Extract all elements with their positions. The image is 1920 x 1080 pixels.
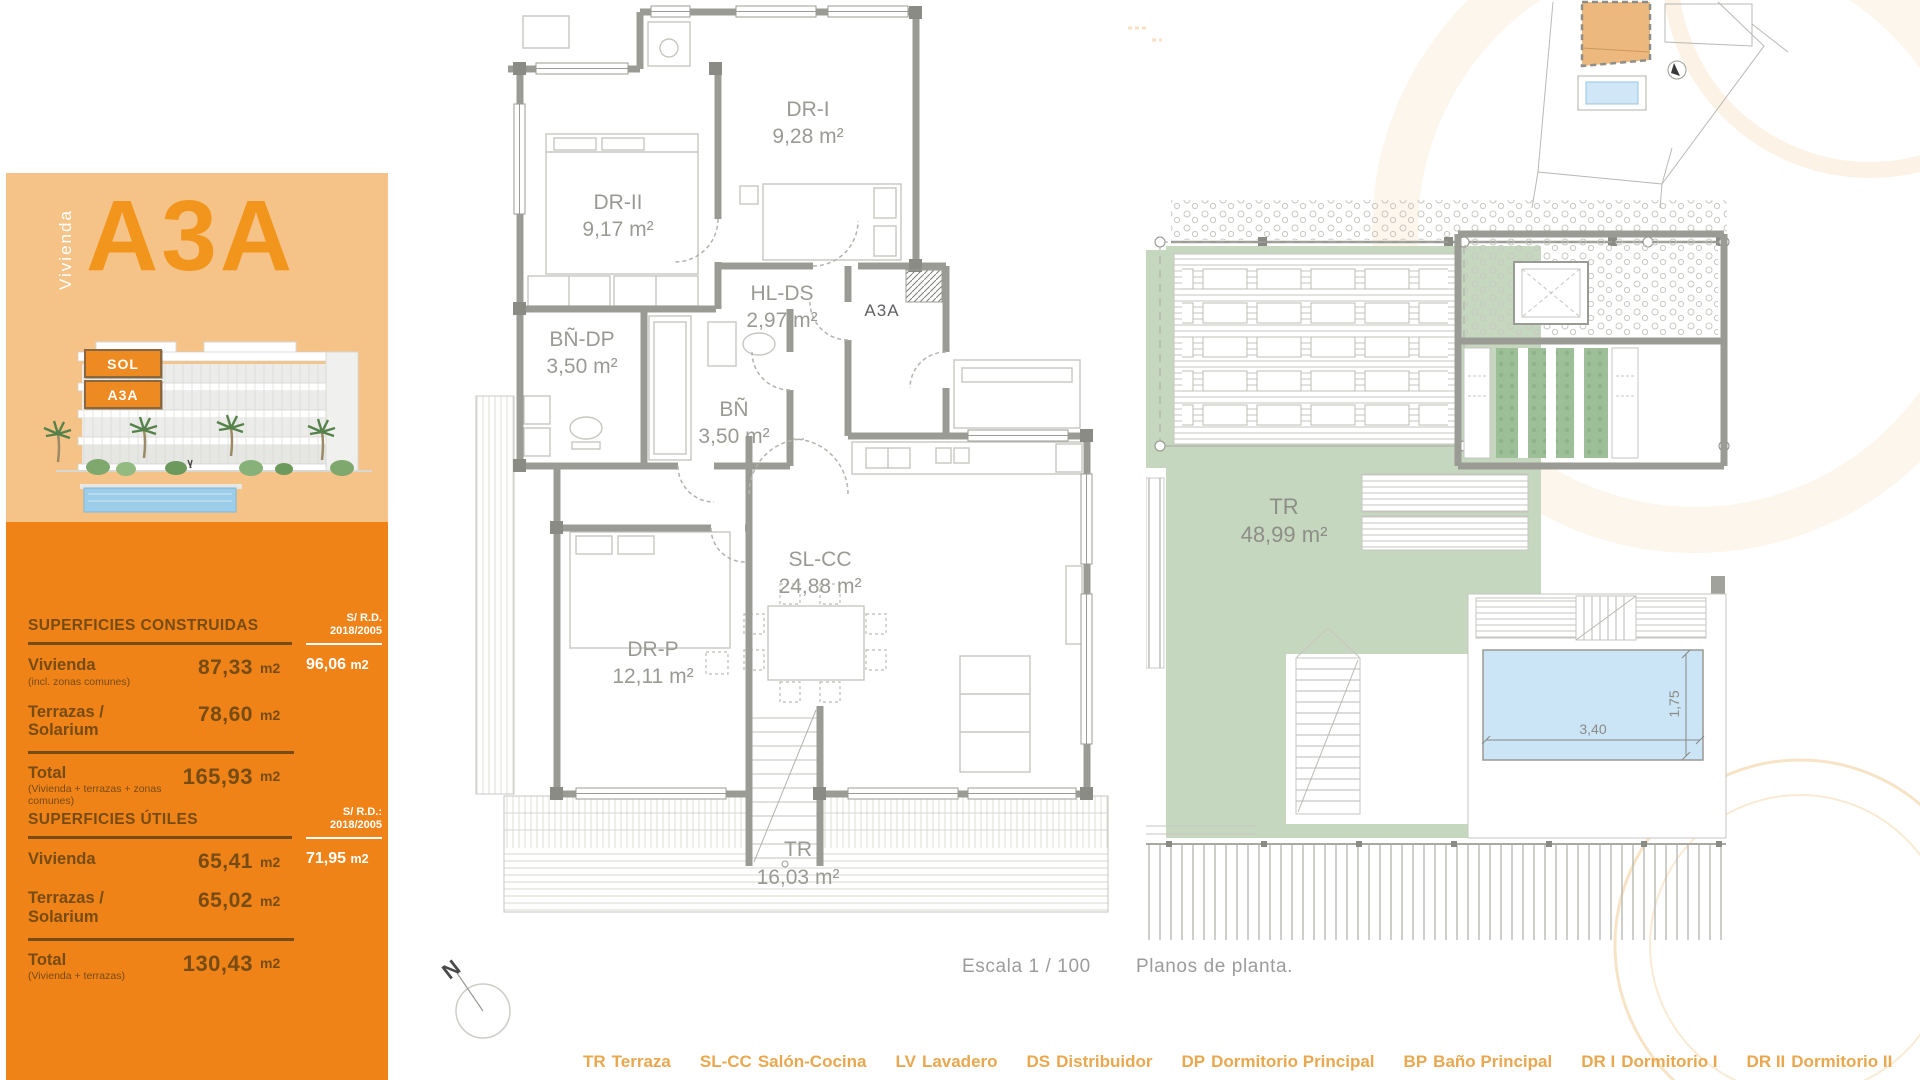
legend-code: DS	[1027, 1052, 1051, 1072]
roof-terrace-label: TR	[1269, 494, 1298, 519]
legend-code: BP	[1404, 1052, 1428, 1072]
room-label-hlds: HL-DS	[750, 282, 813, 305]
legend-name: Baño Principal	[1433, 1052, 1552, 1072]
table-row: Terrazas / Solarium 78,60 m2	[28, 692, 382, 743]
table-superficies-utiles: SUPERFICIES ÚTILES S/ R.D.: 2018/2005 Vi…	[28, 806, 382, 986]
site-compass-icon	[1668, 61, 1686, 79]
entry-walkway	[954, 360, 1080, 428]
room-area-tr: 16,03 m²	[757, 866, 840, 889]
table-row: Vivienda(incl. zonas comunes) 87,33 m2 9…	[28, 645, 382, 692]
kitchen-counter	[852, 442, 1085, 474]
legend-code: DR II	[1747, 1052, 1786, 1072]
table-row: Vivienda 65,41 m2 71,95 m2	[28, 839, 382, 878]
row-value: 65,02	[175, 889, 253, 913]
legend-name: Dormitorio I	[1621, 1052, 1717, 1072]
total-sublabel: (Vivienda + terrazas)	[28, 971, 175, 983]
legend-name: Salón-Cocina	[758, 1052, 867, 1072]
row-label: Vivienda	[28, 850, 96, 868]
row-label: Terrazas / Solarium	[28, 889, 104, 925]
legend-code: SL-CC	[700, 1052, 752, 1072]
row-rd-value: 71,95	[306, 850, 346, 867]
table-rd-header: S/ R.D. 2018/2005	[306, 612, 382, 645]
table-total-row: Total(Vivienda + terrazas) 130,43 m2	[28, 938, 294, 987]
legend-bar: TRTerraza SL-CCSalón-Cocina LVLavadero D…	[583, 1052, 1920, 1072]
room-area-hlds: 2,97 m²	[746, 309, 817, 332]
legend-name: Terraza	[612, 1052, 671, 1072]
table-row: Terrazas / Solarium 65,02 m2	[28, 878, 382, 929]
total-value: 165,93	[175, 764, 253, 790]
laundry-lv	[648, 22, 690, 66]
plans-note: Planos de planta.	[1136, 956, 1293, 978]
legend-code: DR I	[1581, 1052, 1615, 1072]
unit-type-label: Vivienda	[56, 198, 76, 290]
row-rd-value: 96,06	[306, 656, 346, 673]
legend-item: DR IDormitorio I	[1581, 1052, 1717, 1072]
legend-name: Distribuidor	[1056, 1052, 1152, 1072]
row-value: 78,60	[175, 703, 253, 727]
room-label-slcc: SL-CC	[788, 548, 851, 571]
unit-marker: A3A	[864, 301, 899, 320]
room-area-drII: 9,17 m²	[582, 218, 653, 241]
table-title: SUPERFICIES CONSTRUIDAS	[28, 617, 292, 645]
bed-drI	[740, 184, 901, 260]
room-label-bndp: BÑ-DP	[549, 327, 614, 351]
row-unit: m2	[253, 656, 294, 676]
side-deck-strip	[1146, 478, 1164, 668]
row-value: 87,33	[175, 656, 253, 680]
legend-name: Dormitorio Principal	[1211, 1052, 1374, 1072]
pool: 3,40 1,75	[1482, 650, 1704, 760]
site-key-plan	[1520, 0, 1920, 210]
legend-name: Lavadero	[922, 1052, 998, 1072]
table-rd-header: S/ R.D.: 2018/2005	[306, 806, 382, 839]
roof-terrace-area: 48,99 m²	[1241, 522, 1328, 547]
legend-code: DP	[1182, 1052, 1206, 1072]
table-title: SUPERFICIES ÚTILES	[28, 811, 292, 839]
room-area-bn: 3,50 m²	[698, 425, 769, 448]
pool-width-dim: 3,40	[1579, 721, 1606, 737]
row-unit: m2	[253, 703, 294, 723]
total-unit: m2	[253, 951, 294, 971]
row-value: 65,41	[175, 850, 253, 874]
tag-sol-label: SOL	[107, 356, 139, 372]
room-area-bndp: 3,50 m²	[546, 355, 617, 378]
row-unit: m2	[253, 889, 294, 909]
legend-code: LV	[895, 1052, 915, 1072]
row-rd-unit: m2	[351, 658, 369, 672]
legend-item: TRTerraza	[583, 1052, 671, 1072]
wardrobe-drII	[528, 276, 698, 306]
north-arrow: N	[425, 955, 545, 1070]
building-illustration	[26, 338, 388, 522]
tag-sol: SOL	[84, 349, 162, 378]
room-area-drP: 12,11 m²	[612, 665, 693, 688]
pool-height-dim: 1,75	[1666, 690, 1682, 717]
dining-table	[706, 584, 886, 702]
green-strip	[1146, 250, 1171, 468]
legend-item: BPBaño Principal	[1404, 1052, 1553, 1072]
roof-plan: 3,40 1,75 TR 48,99 m²	[1146, 196, 1736, 946]
bath-dp-fixtures	[524, 396, 602, 456]
unit-code-title: A3A	[86, 186, 295, 286]
row-unit: m2	[253, 850, 294, 870]
legend-item: SL-CCSalón-Cocina	[700, 1052, 867, 1072]
legend-name: Dormitorio II	[1791, 1052, 1892, 1072]
legend-code: TR	[583, 1052, 606, 1072]
bed-drP	[570, 532, 730, 648]
room-label-drI: DR-I	[786, 98, 829, 121]
highlighted-unit-footprint	[1582, 2, 1650, 66]
floor-plan: DR-II 9,17 m² DR-I 9,28 m² HL-DS 2,97 m²…	[468, 4, 1128, 954]
site-pool	[1578, 76, 1646, 110]
room-area-slcc: 24,88 m²	[779, 575, 862, 598]
total-unit: m2	[253, 764, 294, 784]
tag-a3a-label: A3A	[107, 387, 138, 403]
legend-item: DPDormitorio Principal	[1182, 1052, 1375, 1072]
room-label-drP: DR-P	[627, 638, 678, 661]
row-label: Vivienda	[28, 656, 96, 674]
total-value: 130,43	[175, 951, 253, 977]
room-label-bn: BÑ	[719, 397, 748, 421]
legend-item: LVLavadero	[895, 1052, 997, 1072]
total-sublabel: (Vivienda + terrazas + zonas comunes)	[28, 784, 175, 807]
scale-note: Escala 1 / 100	[962, 956, 1091, 978]
row-sublabel: (incl. zonas comunes)	[28, 677, 175, 689]
row-rd-unit: m2	[351, 852, 369, 866]
row-label: Terrazas / Solarium	[28, 703, 104, 739]
room-area-drI: 9,28 m²	[772, 125, 843, 148]
fence	[1146, 826, 1726, 940]
table-total-row: Total(Vivienda + terrazas + zonas comune…	[28, 751, 294, 811]
plot-boundaries	[1532, 2, 1788, 208]
total-label: Total	[28, 764, 66, 782]
legend-item: DSDistribuidor	[1027, 1052, 1153, 1072]
total-label: Total	[28, 951, 66, 969]
room-label-tr: TR	[784, 838, 812, 861]
tag-a3a: A3A	[84, 380, 162, 409]
sofa	[960, 566, 1082, 772]
room-label-drII: DR-II	[594, 191, 643, 214]
legend-item: DR IIDormitorio II	[1747, 1052, 1893, 1072]
table-superficies-construidas: SUPERFICIES CONSTRUIDAS S/ R.D. 2018/200…	[28, 612, 382, 812]
